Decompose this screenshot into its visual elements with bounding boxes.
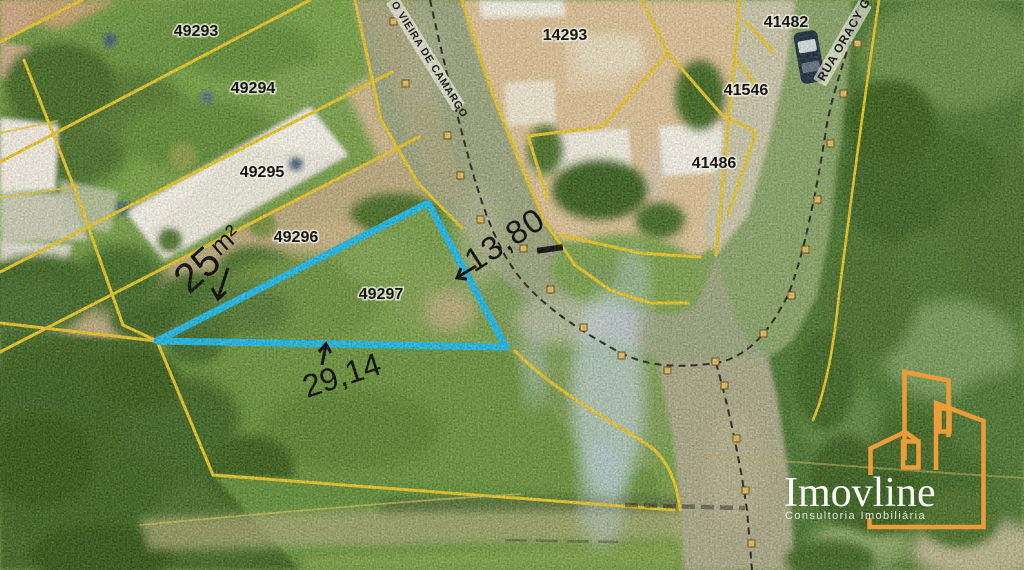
svg-text:14293: 14293 xyxy=(543,27,588,44)
svg-text:49293: 49293 xyxy=(174,23,219,40)
svg-text:49296: 49296 xyxy=(274,229,319,246)
svg-text:41482: 41482 xyxy=(764,14,809,31)
svg-text:49294: 49294 xyxy=(231,80,276,97)
svg-text:Consultoria Imobiliária: Consultoria Imobiliária xyxy=(785,510,926,522)
svg-text:41486: 41486 xyxy=(692,155,737,172)
svg-text:49297: 49297 xyxy=(359,286,404,303)
svg-text:41546: 41546 xyxy=(724,82,769,99)
svg-text:49295: 49295 xyxy=(240,164,285,181)
